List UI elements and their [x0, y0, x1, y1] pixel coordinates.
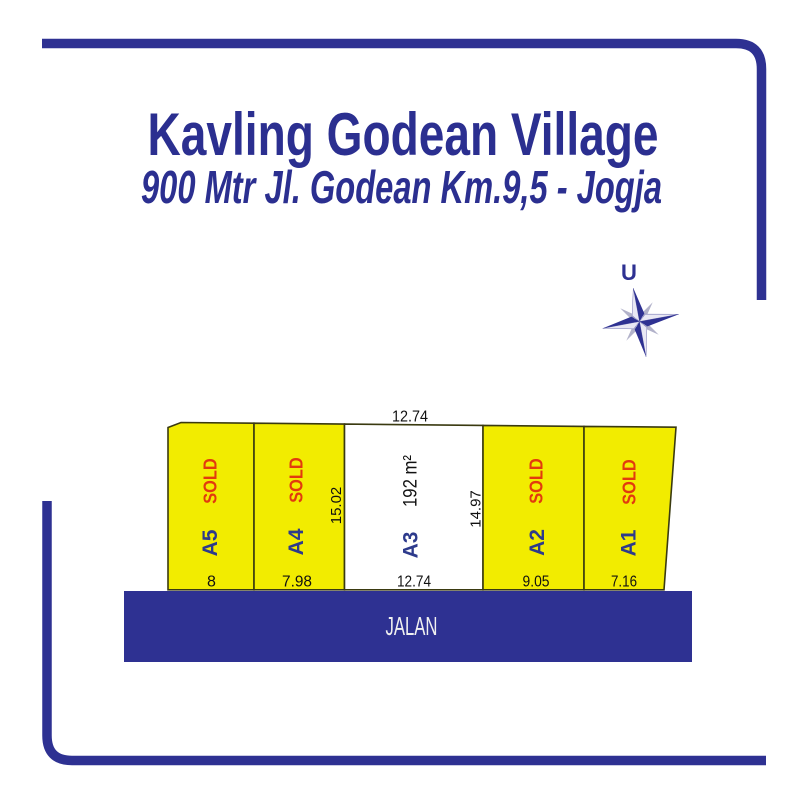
svg-text:12.74: 12.74 [392, 409, 428, 426]
svg-text:A2: A2 [526, 529, 549, 556]
svg-text:8: 8 [207, 574, 216, 591]
svg-text:14.97: 14.97 [468, 490, 485, 528]
svg-text:900 Mtr Jl. Godean Km.9,5 - Jo: 900 Mtr Jl. Godean Km.9,5 - Jogja [141, 161, 662, 213]
svg-text:Kavling Godean Village: Kavling Godean Village [148, 101, 659, 168]
svg-text:9.05: 9.05 [523, 574, 550, 591]
svg-text:U: U [621, 260, 637, 285]
svg-text:15.02: 15.02 [328, 487, 345, 525]
svg-text:7.98: 7.98 [282, 574, 312, 591]
svg-text:SOLD: SOLD [287, 457, 307, 503]
svg-text:A4: A4 [285, 528, 308, 555]
svg-text:7.16: 7.16 [611, 574, 637, 591]
svg-text:JALAN: JALAN [386, 611, 438, 641]
svg-text:SOLD: SOLD [201, 458, 221, 504]
svg-text:A1: A1 [618, 529, 641, 556]
svg-text:SOLD: SOLD [620, 459, 640, 505]
svg-text:12.74: 12.74 [397, 574, 431, 591]
svg-text:A5: A5 [199, 529, 222, 556]
svg-text:A3: A3 [400, 532, 423, 559]
svg-text:192 m²: 192 m² [400, 455, 421, 507]
svg-text:SOLD: SOLD [527, 458, 547, 504]
